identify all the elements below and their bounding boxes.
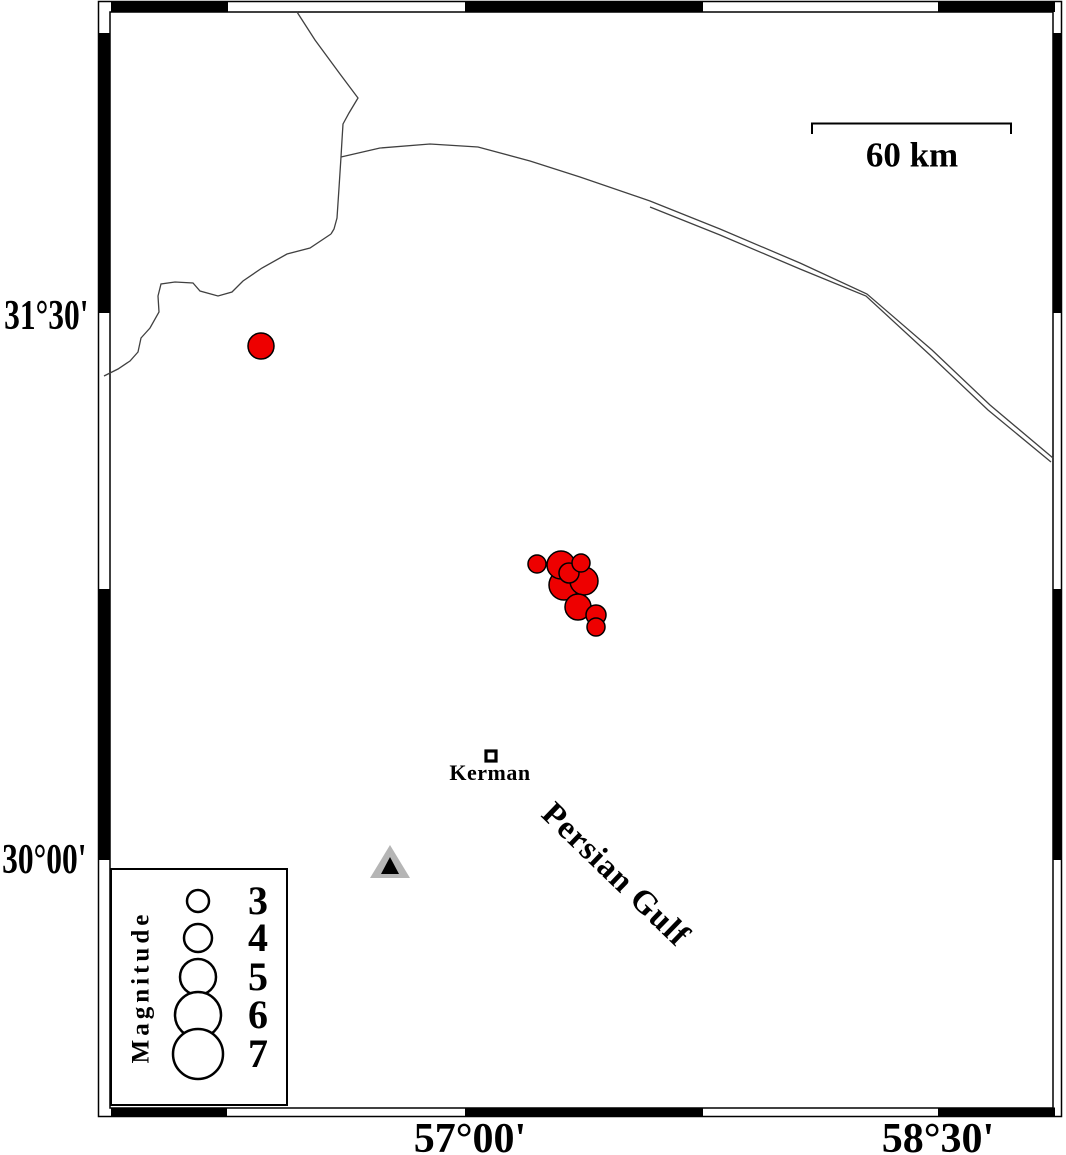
lon-tick-label-58-30: 58°30' [882, 1118, 994, 1155]
seismicity-map-figure: 31°30' 30°00' 57°00' 58°30' 60 km Kerman… [0, 0, 1066, 1155]
road-line-east-2 [650, 207, 1051, 462]
legend-magnitude-value: 4 [248, 918, 268, 958]
legend-circle-m4 [184, 924, 212, 952]
frame-segment [465, 2, 703, 13]
frame-segment [1053, 33, 1062, 313]
legend-title: Magnitude [129, 911, 154, 1064]
scale-bar [812, 124, 1011, 135]
lat-tick-label-30-00: 30°00' [0, 839, 86, 881]
frame-segment [938, 2, 1055, 13]
border-line-north [297, 12, 358, 234]
earthquake-marker [248, 333, 274, 359]
legend-magnitude-value: 6 [248, 995, 268, 1035]
legend-magnitude-value: 5 [248, 957, 268, 997]
station-triangle [370, 845, 410, 878]
earthquake-marker [572, 554, 590, 572]
lat-tick-text: 30°00' [2, 839, 86, 881]
lat-tick-text: 31°30' [4, 295, 88, 337]
frame-segment [111, 2, 228, 13]
earthquake-marker [528, 555, 546, 573]
map-lines [104, 12, 1053, 462]
earthquake-cluster [248, 333, 606, 636]
frame-segment [1053, 589, 1062, 860]
lon-tick-label-57-00: 57°00' [414, 1118, 526, 1155]
scale-bar-label: 60 km [866, 138, 958, 173]
lat-tick-label-31-30: 31°30' [0, 295, 88, 337]
frame-segment [99, 33, 111, 313]
legend-magnitude-value: 7 [248, 1034, 268, 1074]
city-name-label: Kerman [449, 762, 530, 784]
frame-segment [111, 1108, 227, 1118]
road-line-east-1 [341, 144, 1053, 458]
legend-circle-m5 [180, 959, 216, 995]
legend-circle-m3 [187, 890, 209, 912]
legend-circle-m7 [173, 1029, 223, 1079]
earthquake-marker [587, 618, 605, 636]
frame-segment [99, 589, 111, 860]
border-line-southwest [104, 234, 331, 376]
